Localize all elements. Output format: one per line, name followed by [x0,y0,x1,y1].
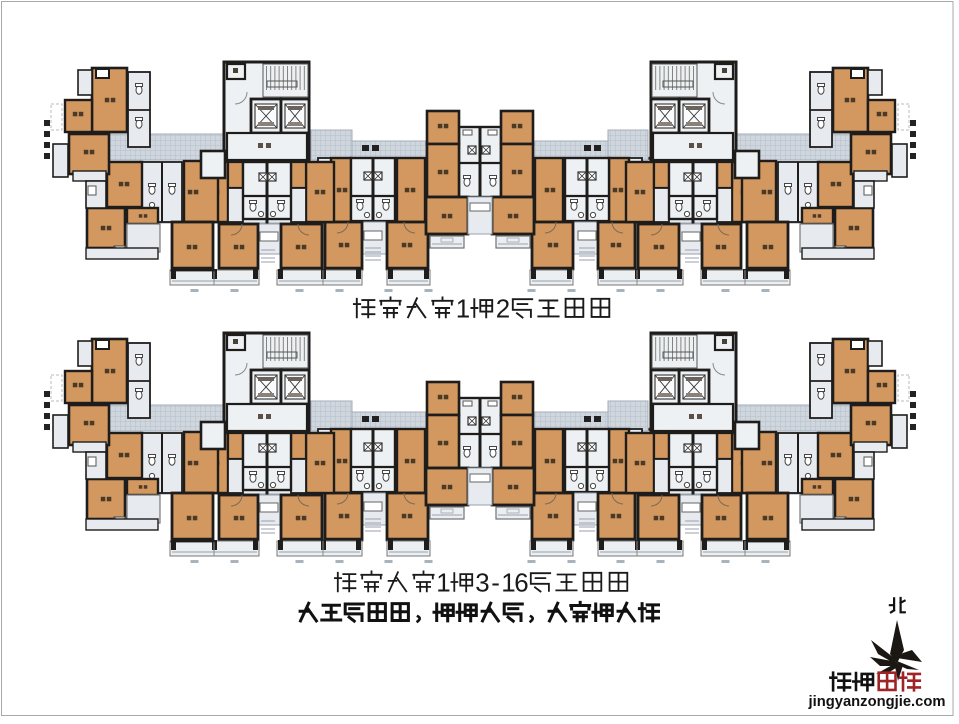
svg-text:jingyanzongjie.com: jingyanzongjie.com [807,694,945,710]
svg-text:-: - [491,570,500,598]
svg-text:2: 2 [496,296,510,324]
svg-text:1: 1 [436,570,450,598]
svg-text:1: 1 [456,296,470,324]
svg-text:6: 6 [514,570,528,598]
svg-text:3: 3 [475,570,489,598]
